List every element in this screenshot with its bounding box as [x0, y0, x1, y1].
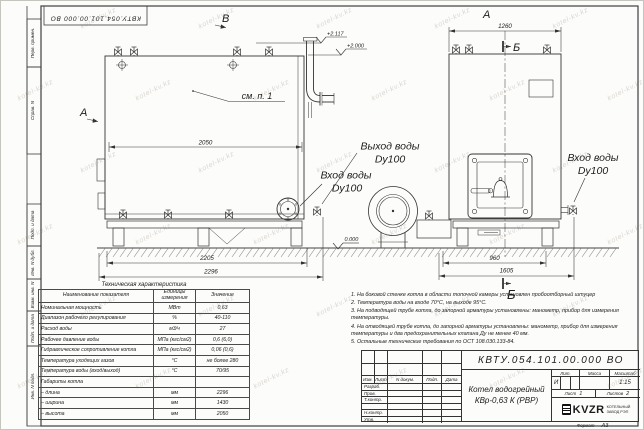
format-note: Формат А3: [546, 423, 639, 429]
inlet-label: Вход воды: [321, 170, 372, 182]
side-stamp: Инв. N дубл.: [30, 249, 35, 276]
spec-row: Рабочее давление водыМПа (кгс/см2)0,6 (6…: [39, 334, 250, 345]
kvzr-logo-icon: [562, 404, 571, 415]
spec-table-title: Техническая характеристика: [38, 282, 250, 288]
product-title-line2: КВр-0,63 К (РВР): [475, 396, 538, 407]
spec-header-value: Значение: [196, 290, 250, 303]
valve-symbol: [234, 47, 241, 56]
spec-header-name: Наименование показателя: [39, 290, 154, 303]
spec-row: Номинальная мощностьМВт0,63: [39, 303, 250, 314]
technical-notes: 1. На боковой стенке котла в области топ…: [351, 292, 639, 347]
view-arrow-label-side: А: [79, 107, 87, 119]
format-label: Формат: [577, 423, 595, 428]
outlet-label: Выход воды: [360, 141, 419, 153]
dim-front-overall: 1605: [500, 268, 514, 275]
dimension-arrowhead: [439, 274, 445, 277]
valve-symbol: [426, 211, 433, 220]
product-title-line1: Котел водогрейный: [468, 385, 544, 396]
spec-header-row: Наименование показателя Единицы измерени…: [39, 290, 250, 303]
side-stamp: Подп. и дата: [30, 210, 35, 239]
view-label-top: В: [222, 13, 229, 25]
valve-symbol: [466, 45, 473, 54]
dimension-arrowhead: [443, 261, 449, 264]
side-stamp: Взам. инв. N: [30, 281, 35, 308]
valve-symbol: [314, 207, 321, 216]
kvzr-logo-caption: КОТЕЛЬНЫЙ ЗАВОД РЭП: [607, 405, 631, 414]
drawing-sheet: Перв. примен. Справ. N Подп. и дата Инв.…: [0, 0, 644, 430]
spec-row: – высотамм2050: [39, 408, 250, 419]
spec-row: – длинамм2296: [39, 387, 250, 398]
valve-symbol: [570, 206, 577, 215]
kvzr-logo: KVZR КОТЕЛЬНЫЙ ЗАВОД РЭП: [552, 398, 640, 421]
fan-blower: [369, 187, 452, 249]
inlet-front-label: Вход воды: [568, 152, 619, 164]
elevation-stack-top: +2.117: [327, 32, 345, 38]
mass-label: Масса: [580, 370, 610, 377]
spec-header-units: Единицы измерения: [154, 290, 196, 303]
note: 5. Остальные технические требования по О…: [351, 339, 639, 346]
revision-table: Изм. Лист N докум. Подп. Дата Разраб. Пр…: [362, 351, 462, 421]
doc-number: КВТУ.054.101.00.000 ВО: [462, 351, 640, 370]
valve-symbol: [165, 210, 172, 219]
section-label-top: Б: [513, 42, 520, 54]
top-corner-stamp: КВТУ.054.101.00.000 ВО: [50, 15, 141, 22]
boiler-side-view: [97, 38, 334, 247]
outlet-dn-label: Dy100: [375, 154, 406, 166]
sign-row: Утв.: [362, 417, 461, 424]
side-stamp: Справ. N: [30, 100, 35, 120]
lit-label: Лит.: [552, 370, 580, 377]
side-stamp: Инв. N подл.: [30, 373, 35, 400]
sheet-number: Лист1: [552, 390, 596, 398]
valve-symbol: [544, 45, 551, 54]
valve-symbol: [115, 47, 122, 56]
note: 2. Температура воды на входе 70°С, на вы…: [351, 300, 639, 307]
dimension-arrowhead: [568, 274, 574, 277]
inlet-flange: [277, 198, 299, 220]
dimension-arrowhead: [301, 261, 307, 264]
dim-side-frame: 2205: [199, 255, 214, 262]
spec-row: – ширинамм1430: [39, 398, 250, 409]
scale-value: 1:15: [610, 377, 640, 390]
scale-label: Масштаб: [610, 370, 640, 377]
spec-table-grid: Наименование показателя Единицы измерени…: [38, 289, 250, 420]
side-stamp: Перв. примен.: [30, 28, 35, 59]
valve-symbol: [266, 47, 273, 56]
dim-side-overall: 2296: [203, 269, 218, 276]
inlet-front-dn-label: Dy100: [578, 165, 609, 177]
note: 3. На подводящей трубе котла, до запорно…: [351, 308, 639, 322]
dimension-arrowhead: [296, 145, 302, 148]
note: 4. На отводящей трубе котла, до запорной…: [351, 324, 639, 338]
dimension-arrowhead: [555, 29, 561, 32]
note: 1. На боковой стенке котла в области топ…: [351, 292, 639, 299]
spec-table: Техническая характеристика Наименование …: [38, 282, 250, 420]
dimension-arrowhead: [109, 145, 115, 148]
furnace-door: [468, 154, 532, 218]
dim-front-top: 1260: [498, 23, 512, 30]
dimension-arrowhead: [540, 261, 546, 264]
title-block: Изм. Лист N докум. Подп. Дата Разраб. Пр…: [361, 350, 639, 422]
spec-row: Температура уходящих газов°Сне более 280: [39, 355, 250, 366]
dimension-arrowhead: [449, 29, 455, 32]
format-value: А3: [602, 423, 609, 429]
view-label-front: А: [482, 9, 490, 21]
boiler-front-view: [449, 31, 568, 257]
revision-header-row: Изм. Лист N докум. Подп. Дата: [362, 376, 461, 384]
dim-front-frame: 960: [489, 255, 500, 262]
dim-side-top: 2050: [198, 140, 213, 147]
product-title: Котел водогрейный КВр-0,63 К (РВР): [462, 370, 552, 421]
valve-symbol: [120, 210, 127, 219]
dimension-arrowhead: [107, 261, 113, 264]
valve-symbol: [226, 210, 233, 219]
sheet-count: Листов2: [596, 390, 640, 398]
spec-row: Габариты котла: [39, 377, 250, 388]
spec-row: Диапазон рабочего регулирования%40-110: [39, 313, 250, 324]
valve-symbol: [131, 47, 138, 56]
inlet-dn-label: Dy100: [332, 183, 363, 195]
dimension-arrowhead: [317, 275, 323, 278]
lit-value: И: [552, 377, 561, 390]
spec-row: Гидравлическое сопротивление котлаМПа (к…: [39, 345, 250, 356]
kvzr-logo-text: KVZR: [573, 404, 605, 416]
dimension-arrowhead: [99, 275, 105, 278]
spec-row: Расход водым3/ч27: [39, 324, 250, 335]
mass-value: [580, 377, 610, 390]
elevation-ground: 0.000: [345, 237, 360, 243]
elevation-boiler-top: +2.000: [347, 44, 365, 50]
ground-line: [97, 248, 619, 257]
note-reference: см. п. 1: [242, 91, 273, 101]
side-stamp: Подп. и дата: [30, 314, 35, 343]
valve-symbol: [453, 45, 460, 54]
spec-row: Температура воды (вход/выход)°С70/95: [39, 366, 250, 377]
